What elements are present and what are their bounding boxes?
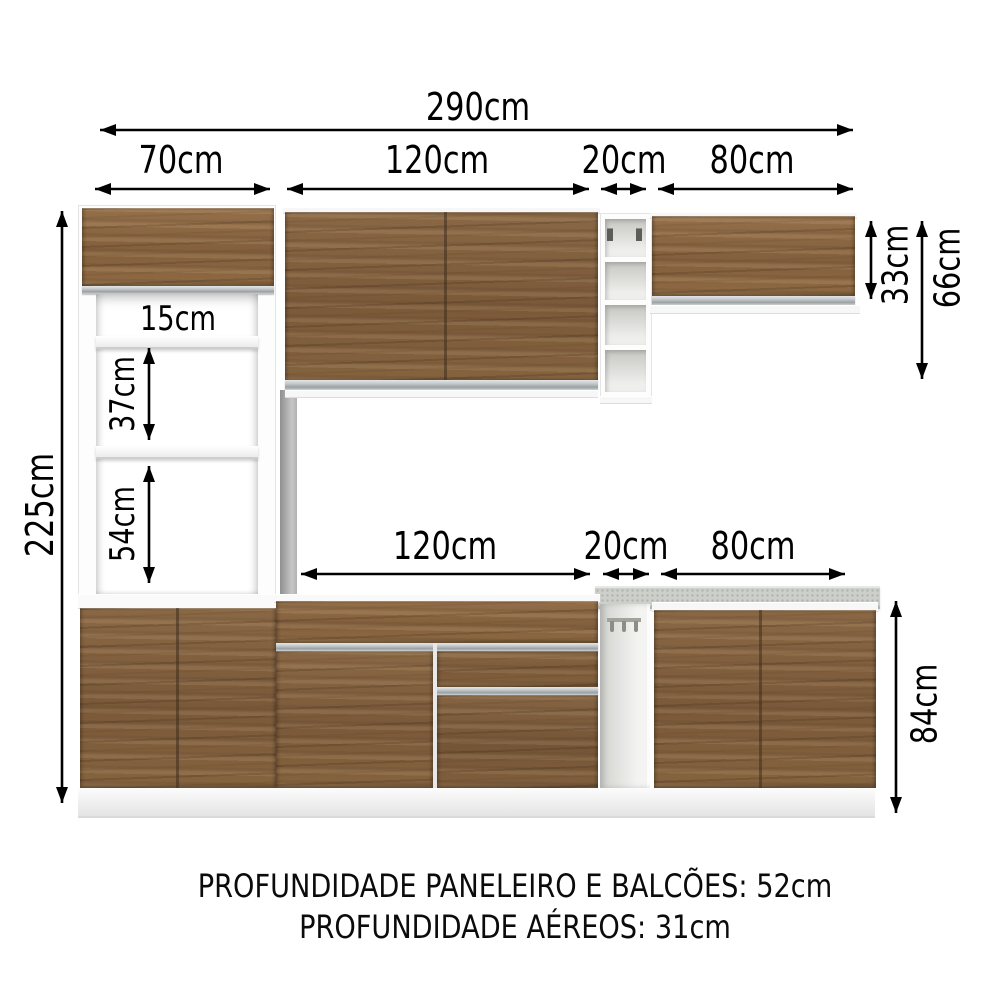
hinge-icon — [607, 228, 613, 241]
upper-niche-cell-3 — [605, 305, 646, 345]
upper-cabinet-80-handle-strip — [652, 296, 855, 305]
dim-label-120-mid: 120cm — [393, 524, 497, 568]
dim-label-20-top: 20cm — [581, 138, 666, 182]
base-cabinet-120-drawer-2 — [437, 651, 598, 687]
upper-cabinet-120-handle-strip — [285, 380, 598, 390]
dim-label-66: 66cm — [928, 228, 969, 309]
upper-cabinet-120-underside — [285, 390, 598, 398]
base-cabinet-120-handle-bottom — [437, 687, 598, 695]
hinge-icon — [636, 228, 642, 241]
dim-label-33: 33cm — [876, 225, 917, 306]
hook-icon — [634, 621, 638, 632]
dim-label-290: 290cm — [426, 85, 530, 129]
base-cabinet-120-divider — [433, 643, 437, 788]
tall-cabinet-door-seam — [176, 608, 179, 788]
upper-niche-cell-4 — [605, 350, 646, 392]
dim-label-225: 225cm — [18, 453, 62, 557]
upper-niche-underside — [600, 396, 652, 404]
base-cabinet-80-door-seam — [759, 610, 762, 788]
filler-column — [280, 390, 297, 596]
dim-label-120-top: 120cm — [385, 138, 489, 182]
hook-icon — [622, 621, 626, 632]
hook-icon — [610, 621, 614, 632]
base-cabinet-80-doors — [654, 610, 876, 788]
upper-cabinet-120-doors — [285, 212, 598, 382]
base-cabinet-120-handle-right — [437, 643, 598, 651]
depth-note-cabinets: PROFUNDIDADE PANELEIRO E BALCÕES: 52cm — [198, 867, 833, 905]
depth-note-uppers: PROFUNDIDADE AÉREOS: 31cm — [299, 908, 731, 946]
dim-label-15: 15cm — [140, 299, 216, 339]
upper-cabinet-80-door — [652, 216, 855, 296]
dim-label-20-mid: 20cm — [583, 524, 668, 568]
tall-cabinet-base-top — [78, 594, 276, 609]
base-cabinet-120-top-drawer — [276, 601, 598, 643]
kitchen-dimension-diagram: 290cm 70cm 120cm 20cm 80cm 225cm 15cm 37… — [0, 0, 1000, 1000]
tall-cabinet-top-door — [82, 208, 274, 286]
plinth — [78, 788, 875, 818]
dim-label-80-mid: 80cm — [710, 524, 795, 568]
base-cabinet-120-handle-left — [276, 643, 433, 651]
tall-cabinet-handle-strip — [82, 286, 274, 294]
upper-cabinet-80-underside — [650, 305, 860, 314]
dim-label-37: 37cm — [103, 356, 143, 432]
dim-label-80-top: 80cm — [709, 138, 794, 182]
tall-cabinet-shelf-2 — [96, 446, 258, 459]
upper-niche-cell-2 — [605, 262, 646, 300]
base-cabinet-120-drawer-3 — [437, 695, 598, 788]
base-cabinet-120-door — [276, 651, 433, 788]
upper-cabinet-120-door-seam — [444, 212, 447, 382]
dim-label-54: 54cm — [103, 486, 143, 562]
dim-label-70-top: 70cm — [138, 138, 223, 182]
dim-label-84: 84cm — [905, 664, 946, 745]
